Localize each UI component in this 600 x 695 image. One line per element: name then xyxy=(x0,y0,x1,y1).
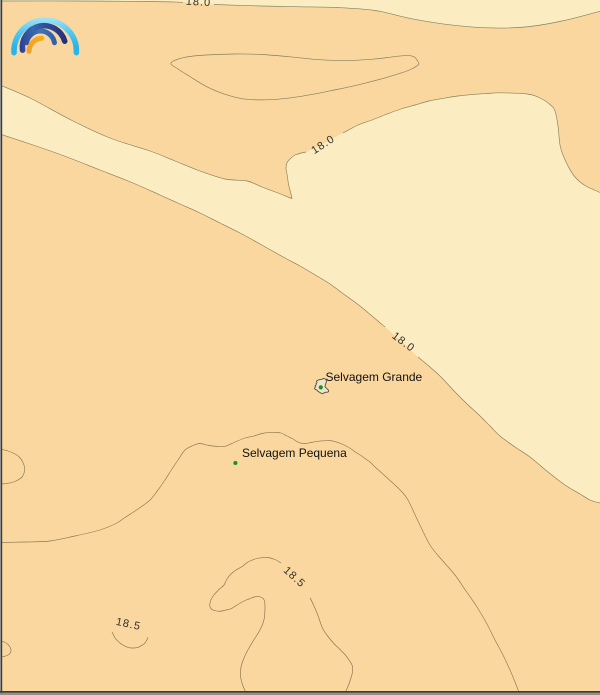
svg-text:Selvagem Pequena: Selvagem Pequena xyxy=(242,446,347,460)
svg-text:18.0: 18.0 xyxy=(185,0,211,9)
svg-text:Selvagem Grande: Selvagem Grande xyxy=(326,370,423,384)
